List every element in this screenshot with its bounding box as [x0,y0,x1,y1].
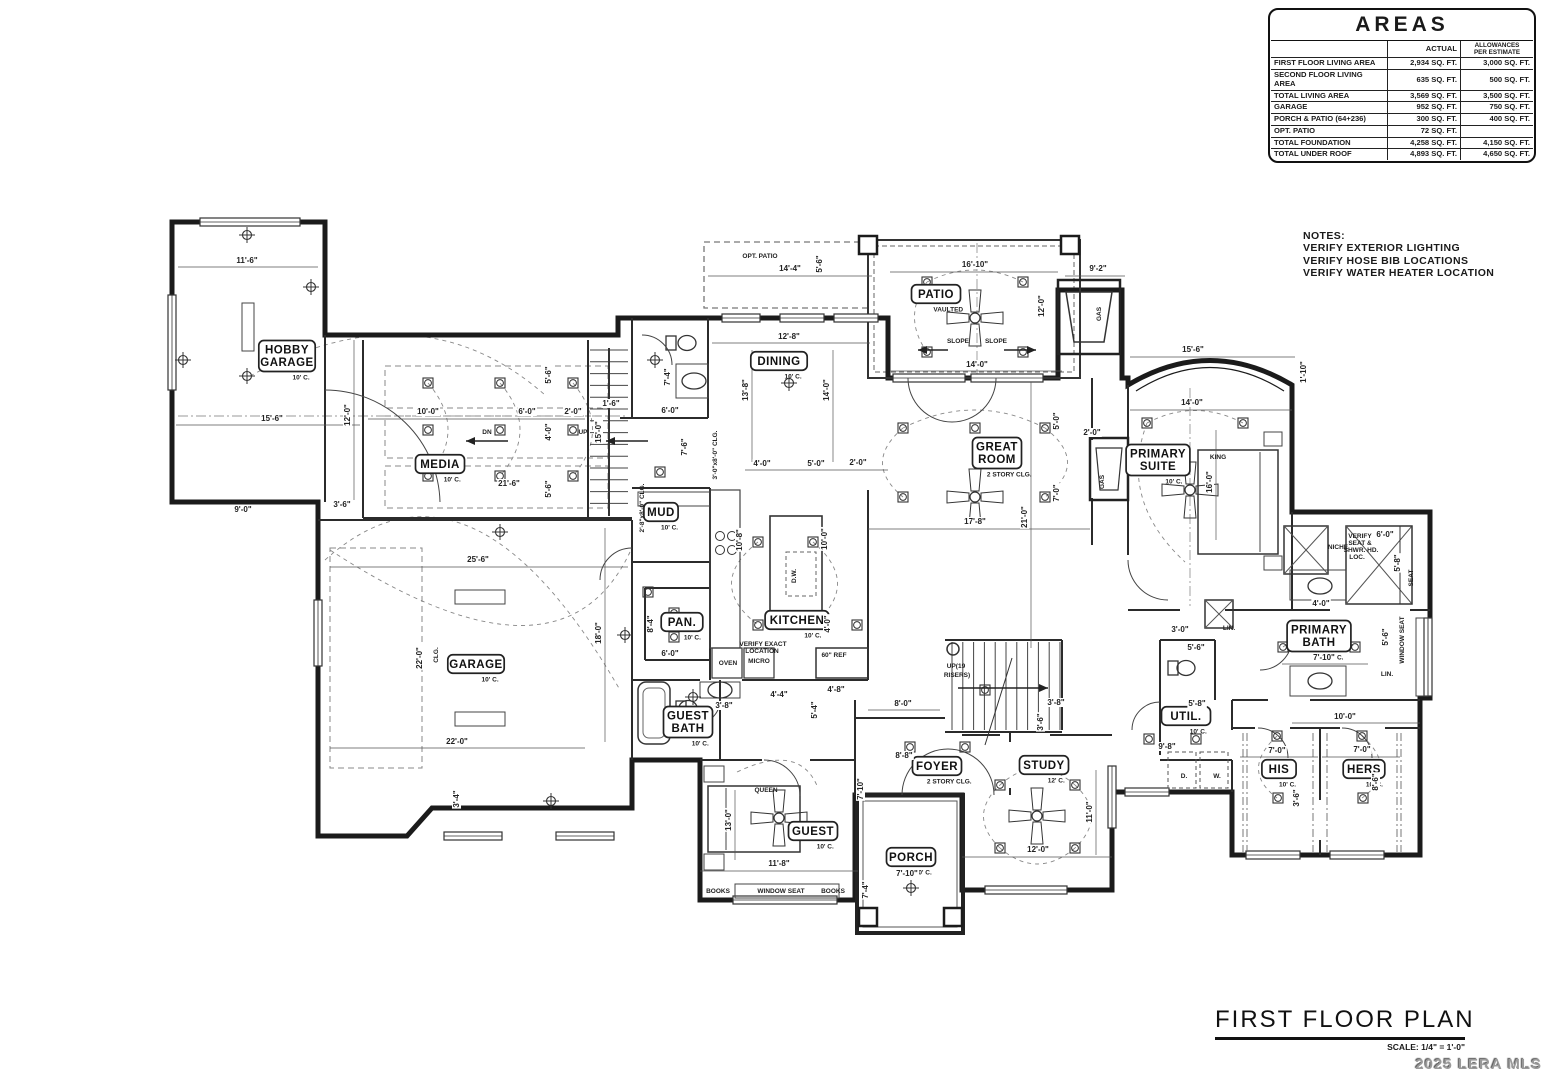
door-swing [1128,560,1168,600]
room-label: UTIL.10' C. [1162,707,1211,736]
annotation-label: WINDOW SEAT [757,888,804,895]
room-ceiling-note: 12' C. [1048,777,1065,784]
ceiling-fan-icon [1185,485,1195,495]
recessed-light-icon [1352,644,1359,651]
areas-row: TOTAL LIVING AREA3,569 SQ. FT.3,500 SQ. … [1271,90,1533,102]
room-name: KITCHEN [770,615,825,627]
ceiling-fan-icon [970,492,980,502]
room-ceiling-note: 10' C. [661,524,678,531]
annotation-label: UP [578,429,588,436]
recessed-light-icon [1146,736,1153,743]
areas-col-header: ALLOWANCES PER ESTIMATE [1461,41,1534,58]
dimension-label: 15'-6" [1182,345,1204,354]
recessed-light-icon [1360,795,1367,802]
recessed-light-icon [1042,494,1049,501]
door-swing [1132,702,1160,730]
dimension-label: 3'-8" [1047,698,1064,707]
dimension-label: 14'-0" [1181,398,1203,407]
annotation-label: SEAT & [1348,540,1372,547]
recessed-light-icon [657,469,664,476]
dimension-label: 2'-0" [1083,428,1100,437]
recessed-light-icon [980,685,990,695]
dimension-label: 13'-8" [741,379,750,401]
surface-light-icon [647,352,663,368]
direction-arrow [606,437,648,445]
opt-patio-outline [704,242,868,308]
wiring-arc [883,428,904,497]
areas-cell-allowance: 400 SQ. FT. [1461,114,1534,126]
room-ceiling-note: 10' C. [293,375,310,382]
dimension-label: 1'-6" [602,399,619,408]
annotation-label: D.W. [791,569,798,583]
nightstand [1264,556,1282,570]
sink [1308,578,1332,594]
recessed-light-icon [1238,418,1248,428]
dimension-label: 7'-4" [861,881,870,898]
dimension-label: 9'-2" [1089,264,1106,273]
areas-cell-actual: 4,258 SQ. FT. [1388,137,1461,149]
dimension-label: 5'-0" [1052,412,1061,429]
dimension-label: 12'-0" [1027,845,1049,854]
dimension-label: 16'-10" [962,260,988,269]
dimension-label: 5'-6" [1381,628,1390,645]
recessed-light-icon [1144,734,1154,744]
areas-cell-actual: 300 SQ. FT. [1388,114,1461,126]
dimension-label: 3'-4" [452,790,461,807]
room-name: SUITE [1140,461,1176,473]
sheet-title: FIRST FLOOR PLAN [1215,1006,1475,1034]
dimension-label: 2'-0" [849,458,866,467]
dimension-label: 12'-8" [778,332,800,341]
areas-table: AREAS ACTUALALLOWANCES PER ESTIMATE FIRS… [1268,8,1536,163]
areas-row: TOTAL UNDER ROOF4,893 SQ. FT.4,650 SQ. F… [1271,149,1533,160]
room-label: HIS10' C. [1262,760,1296,789]
dimension-label: 4'-0" [753,459,770,468]
dimension-label: 4'-4" [770,690,787,699]
surface-light-icon [239,227,255,243]
room-name: PORCH [889,852,933,864]
dryer [1168,752,1196,788]
dimension-label: 5'-8" [1393,554,1402,571]
room-label: FOYER2 STORY CLG. [913,757,972,786]
dimension-label: 10'-0" [417,407,439,416]
patio-post [1061,236,1079,254]
recessed-light-icon [568,471,578,481]
annotation-label: KING [1210,454,1226,461]
recessed-light-icon [497,427,504,434]
door-swing [908,378,952,422]
recessed-light-icon [568,425,578,435]
surface-light-icon [903,880,919,896]
wiring-arc [1147,411,1243,424]
dimension-label: 2'-0" [564,407,581,416]
doors [325,335,1372,796]
dimension-label: 14'-0" [966,360,988,369]
dimension-label: 8'-8" [895,751,912,760]
wiring-arc [984,785,1001,848]
dimension-label: 3'-0" [1171,625,1188,634]
areas-cell-label: TOTAL LIVING AREA [1271,90,1388,102]
annotation-label: 60" REF [821,652,846,659]
room-ceiling-note: 10' C. [804,632,821,639]
annotation-label: QUEEN [754,787,777,794]
dimension-label: 22'-0" [446,737,468,746]
ceiling-fan-icon [969,469,981,491]
dimension-label: 16'-0" [1205,471,1214,493]
recessed-light-icon [1191,734,1201,744]
room-ceiling-note: 10' C. [482,676,499,683]
ceiling-fan-icon [981,312,1003,324]
recessed-light-icon [755,622,762,629]
room-label: GREATROOM2 STORY CLG. [973,438,1032,479]
queen-bed [708,786,800,852]
areas-row: FIRST FLOOR LIVING AREA2,934 SQ. FT.3,00… [1271,58,1533,70]
ceiling-fan-icon [947,491,969,503]
recessed-light-icon [570,427,577,434]
ceiling-fan-icon [751,812,773,824]
title-block: FIRST FLOOR PLAN SCALE: 1/4" = 1'-0" [1215,1006,1475,1052]
plan-notes: NOTES: VERIFY EXTERIOR LIGHTING VERIFY H… [1303,230,1494,280]
areas-title: AREAS [1271,11,1533,41]
wiring-arc [732,542,759,625]
room-name: FOYER [916,761,958,773]
dimension-label: 7'-6" [680,438,689,455]
room-name: GREAT [976,442,1018,454]
recessed-light-icon [854,622,861,629]
annotation-label: SHWR. HD. [1344,547,1379,554]
areas-cell-allowance [1461,125,1534,137]
direction-arrow [466,437,508,445]
ceiling-fan-icon [1009,788,1065,844]
dimension-label: 6'-0" [661,406,678,415]
areas-cell-actual: 72 SQ. FT. [1388,125,1461,137]
areas-cell-allowance: 500 SQ. FT. [1461,70,1534,90]
ceiling-fan-icon [1031,788,1043,810]
stair-newel [947,643,959,655]
notes-lines: VERIFY EXTERIOR LIGHTING VERIFY HOSE BIB… [1303,242,1494,279]
room-name: UTIL. [1170,711,1201,723]
ceiling-fan-icon [1043,810,1065,822]
room-name: PRIMARY [1130,449,1186,461]
dimension-label: 5'-4" [810,701,819,718]
annotation-label: LOC. [1349,554,1365,561]
ceiling-fan-icon [970,313,980,323]
ceiling-soffit [330,548,422,768]
annotation-label: OVEN [719,660,738,667]
recessed-light-icon [669,632,679,642]
recessed-light-icon [1018,347,1028,357]
areas-cell-label: PORCH & PATIO (64+236) [1271,114,1388,126]
areas-cell-actual: 4,893 SQ. FT. [1388,149,1461,160]
dimension-label: 3'-8" [715,701,732,710]
floor-plan-sheet: { "areas_table": { "title": "AREAS", "co… [0,0,1548,1080]
annotation-label: SLOPE [985,338,1008,345]
dimension-label: 7'-10" [856,778,865,800]
annotation-label: BOOKS [706,888,731,895]
dimension-label: 6'-0" [518,407,535,416]
labels: HOBBYGARAGE10' C.MEDIA10' C.GARAGE10' C.… [233,253,1415,900]
surface-light-icon [175,352,191,368]
recessed-light-icon [962,744,969,751]
dimension-label: 6'-0" [661,649,678,658]
recessed-light-icon [907,744,914,751]
cooktop-burner [716,532,725,541]
room-ceiling-note: VAULTED [933,306,963,313]
ceiling-soffit [385,366,608,408]
room-name: PRIMARY [1291,625,1347,637]
dimension-label: 21'-0" [1020,506,1029,528]
room-label: GUESTBATH10' C. [664,707,713,748]
room-ceiling-note: 10' C. [817,843,834,850]
room-name: HIS [1269,764,1290,776]
sink [1308,673,1332,689]
annotation-label: LIN. [1381,671,1393,678]
ceiling-fan-icon [1032,811,1042,821]
annotation-label: GAS [1096,306,1103,321]
room-label: HOBBYGARAGE10' C. [259,341,315,382]
annotation-label: OPT. PATIO [742,253,777,260]
surface-light-icon [303,279,319,295]
surface-light-icon [492,524,508,540]
room-ceiling-note: 10' C. [1279,781,1296,788]
areas-row: OPT. PATIO72 SQ. FT. [1271,125,1533,137]
room-name: GARAGE [260,357,313,369]
room-name: PATIO [918,289,954,301]
wiring-arc [737,760,818,788]
areas-cell-allowance: 3,500 SQ. FT. [1461,90,1534,102]
room-label: GUEST10' C. [789,822,838,851]
annotation-label: D. [1181,773,1188,780]
recessed-light-icon [1040,492,1050,502]
areas-cell-label: TOTAL FOUNDATION [1271,137,1388,149]
recessed-light-icon [1358,793,1368,803]
dimension-label: 12'-0" [1037,295,1046,317]
great-room-fireplace [1090,438,1128,500]
toilet [678,336,696,351]
sink [682,373,706,389]
room-name: HOBBY [265,345,309,357]
annotation-label: VERIFY [1348,533,1372,540]
annotation-label: RISERS) [944,672,970,679]
dimension-label: 9'-8" [1158,742,1175,751]
recessed-light-icon [1275,795,1282,802]
toilet [666,336,676,350]
recessed-light-icon [423,425,433,435]
areas-cell-actual: 635 SQ. FT. [1388,70,1461,90]
surface-light-icon [617,627,633,643]
exterior-wall [172,222,1430,900]
room-label: PATIOVAULTED [912,285,964,314]
room-name: MUD [647,507,675,519]
recessed-light-icon [655,467,665,477]
ceiling-fan-icon [947,312,969,324]
annotation-label: SEAT [1408,570,1415,587]
dimension-label: 6'-0" [1376,530,1393,539]
dimension-label: 5'-6" [544,480,553,497]
cooktop-burner [716,546,725,555]
areas-cell-actual: 3,569 SQ. FT. [1388,90,1461,102]
nightstand [1264,432,1282,446]
dimension-label: 7'-0" [1353,745,1370,754]
areas-cell-actual: 2,934 SQ. FT. [1388,58,1461,70]
washer [1200,752,1228,788]
dimension-label: 8'-0" [894,699,911,708]
dimension-label: 5'-6" [815,255,824,272]
dimension-label: 5'-0" [807,459,824,468]
areas-cell-actual: 952 SQ. FT. [1388,102,1461,114]
areas-col-header: ACTUAL [1388,41,1461,58]
room-name: MEDIA [420,459,460,471]
ceiling-fan-icon [981,491,1003,503]
room-label: STUDY12' C. [1020,756,1069,785]
recessed-light-icon [970,423,980,433]
room-label: PAN.10' C. [661,613,703,642]
dimension-label: 4'-0" [823,615,832,632]
room-name: BATH [671,723,704,735]
dimension-label: 11'-8" [768,859,789,868]
room-ceiling-note: 10' C. [684,634,701,641]
ceiling-soffit [385,416,608,458]
direction-arrow [466,437,475,445]
dimension-label: 14'-0" [822,379,831,401]
areas-cell-allowance: 4,650 SQ. FT. [1461,149,1534,160]
nightstand [704,766,724,782]
areas-cell-allowance: 3,000 SQ. FT. [1461,58,1534,70]
room-name: PAN. [668,617,697,629]
recessed-light-icon [852,620,862,630]
recessed-light-icon [753,620,763,630]
annotation-label: BOOKS [821,888,846,895]
areas-cell-label: FIRST FLOOR LIVING AREA [1271,58,1388,70]
recessed-light-icon [495,425,505,435]
recessed-light-icon [425,427,432,434]
annotation-label: LOCATION [745,648,779,655]
dimension-label: 4'-0" [544,423,553,440]
direction-arrow [1027,346,1036,354]
king-bed [1198,450,1278,554]
vanity [1290,666,1346,696]
dimension-label: 5'-6" [1187,643,1204,652]
dimension-label: 7'-0" [1052,484,1061,501]
kitchen-island [770,516,822,612]
dimension-label: 7'-4" [663,368,672,385]
dimension-label: 7'-10" [896,869,918,878]
dimension-label: 15'-0" [594,421,603,443]
room-label: DINING10' C. [751,352,807,381]
dimension-label: 3'-6" [1292,789,1301,806]
ceiling-fan-icon [1031,822,1043,844]
ceiling-fan-icon [969,324,981,346]
dimension-label: 9'-0" [234,505,251,514]
kitchen-counter [710,490,740,648]
room-label: MUD10' C. [644,503,678,532]
room-name: DINING [757,356,800,368]
recessed-light-icon [1240,420,1247,427]
room-ceiling-note: 2 STORY CLG. [927,778,972,785]
patio-post [859,236,877,254]
dimension-label: 22'-0" [415,647,424,669]
areas-cell-label: OPT. PATIO [1271,125,1388,137]
vanity [676,364,708,398]
room-ceiling-note: 10' C. [1190,728,1207,735]
ceiling-fan-icon [773,824,785,846]
dimension-label: 1'-10" [1299,361,1308,383]
ceiling-fan-icon [1009,810,1031,822]
direction-arrow [958,684,1048,692]
dimension-label: 18'-0" [594,622,603,644]
dimension-label: 3'-6" [333,500,350,509]
recessed-light-icon [1193,736,1200,743]
recessed-light-icon [570,473,577,480]
garage-shelf [455,712,505,726]
ceiling-fan-icon [969,290,981,312]
dimension-label: 14'-4" [779,264,801,273]
annotation-label: 3'-0"x8'-0" CLG. [712,430,719,479]
dimension-label: 7'-0" [1268,746,1285,755]
dimension-label: 10'-0" [1334,712,1356,721]
areas-cell-label: SECOND FLOOR LIVING AREA [1271,70,1388,90]
patio-firebox [1066,292,1112,342]
room-name: GUEST [792,826,834,838]
nightstand [704,854,724,870]
title-underline [1215,1037,1465,1040]
room-label: GARAGE10' C. [448,655,504,684]
room-label: KITCHEN10' C. [765,611,829,640]
room-name: STUDY [1023,760,1064,772]
annotation-label: GAS [1099,474,1106,489]
room-ceiling-note: 10' C. [785,373,802,380]
areas-row: SECOND FLOOR LIVING AREA635 SQ. FT.500 S… [1271,70,1533,90]
dimension-label: 15'-6" [261,414,283,423]
annotation-label: DN [482,429,492,436]
light-symbols [175,227,1368,896]
annotation-label: CLG. [433,647,440,663]
direction-arrow [1039,684,1048,692]
room-ceiling-note: 10' C. [692,741,709,748]
notes-heading: NOTES: [1303,230,1345,242]
bathtub-inner [643,688,665,738]
annotation-label: MICRO [748,658,770,665]
annotation-label: LIN. [1223,625,1235,632]
fixtures [242,280,1428,898]
room-name: GARAGE [449,659,502,671]
dimension-label: 13'-0" [724,809,733,831]
areas-col-header [1271,41,1388,58]
dimension-label: 12'-0" [343,404,352,426]
direction-arrow [606,437,615,445]
mls-watermark: 2025 LERA MLS [1415,1056,1542,1073]
annotation-label: VERIFY EXACT [739,641,786,648]
annotation-label: SLOPE [947,338,970,345]
areas-row: GARAGE952 SQ. FT.750 SQ. FT. [1271,102,1533,114]
areas-cell-label: GARAGE [1271,102,1388,114]
room-name: ROOM [978,454,1016,466]
areas-header: ACTUALALLOWANCES PER ESTIMATE [1271,41,1533,58]
dimension-label: 21'-6" [498,479,520,488]
dimension-label: 17'-8" [964,517,986,526]
room-name: GUEST [667,711,709,723]
recessed-light-icon [972,425,979,432]
dimension-label: 4'-8" [827,685,844,694]
door-swing [952,378,996,422]
dimension-label: 11'-0" [1085,801,1094,822]
porch-post [944,908,962,926]
dimension-label: 10'-8" [735,529,744,551]
dimension-label: 4'-0" [1312,599,1329,608]
surface-light-icon [685,689,701,705]
areas-cell-label: TOTAL UNDER ROOF [1271,149,1388,160]
dimension-label: 10'-0" [820,528,829,550]
